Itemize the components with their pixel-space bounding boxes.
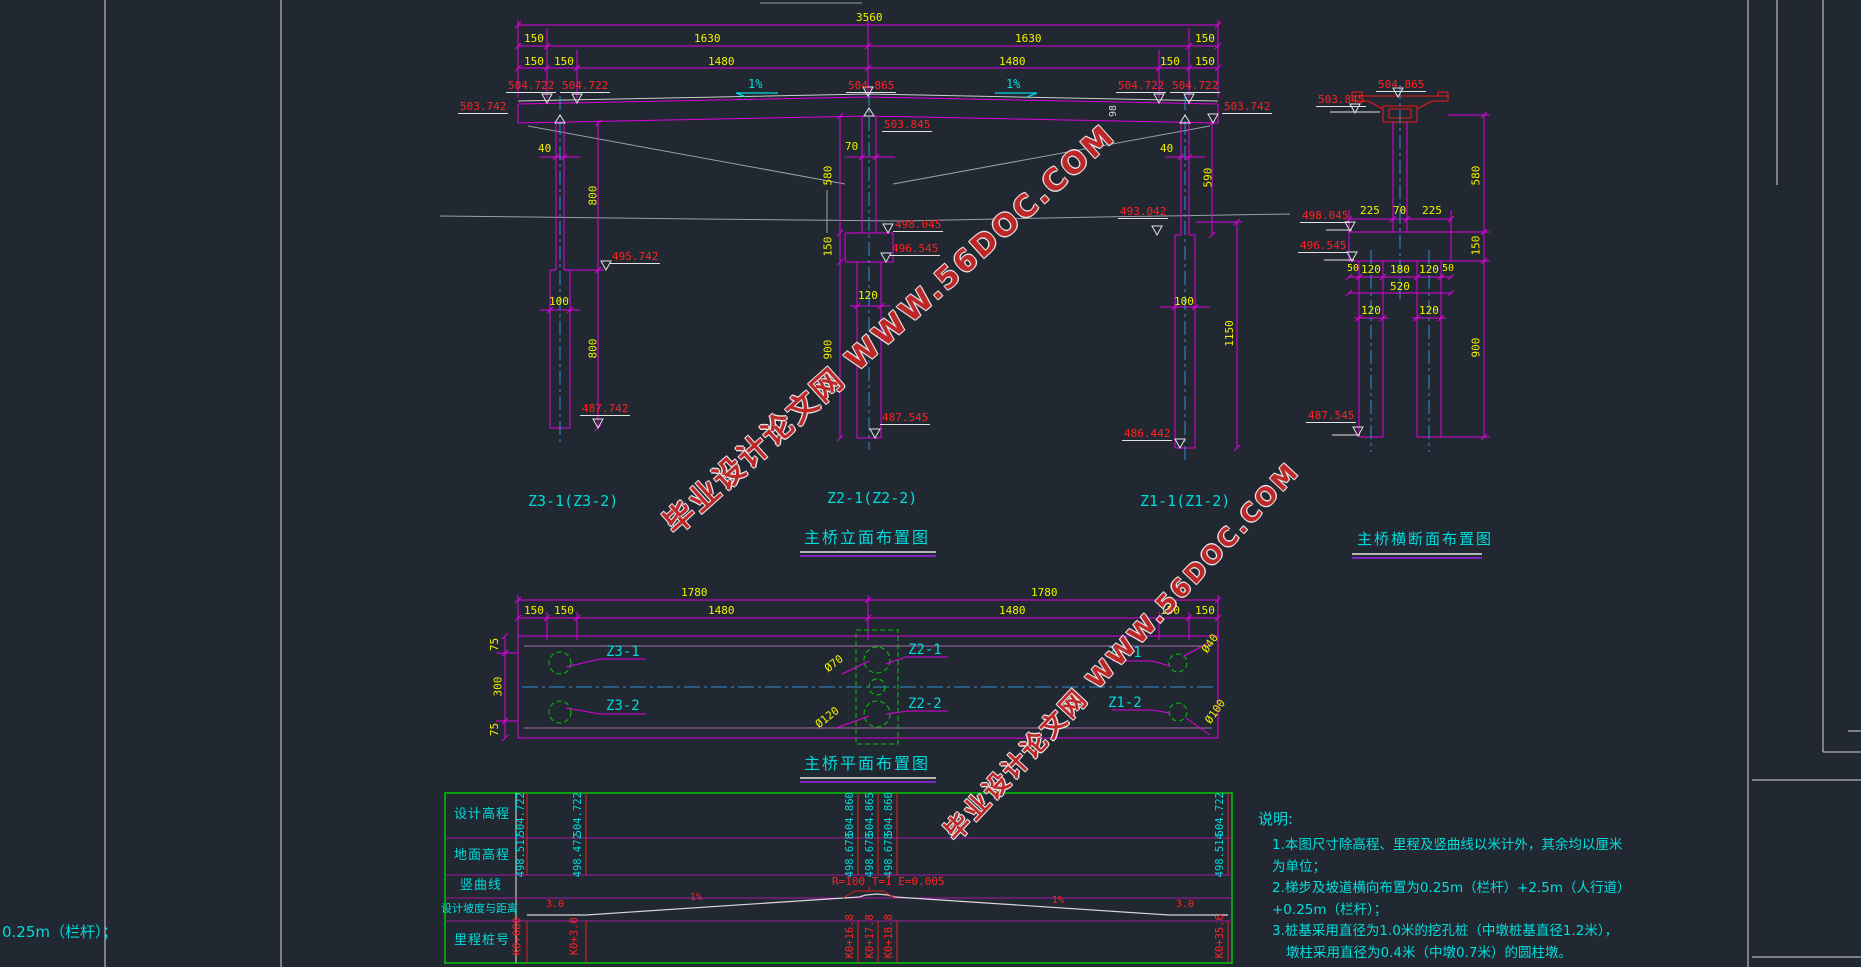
z3-lower-height: 800: [587, 339, 598, 359]
plan-dim-150-2: 150: [554, 605, 574, 616]
profile-grade-line: [527, 894, 1228, 915]
plan-pile-z21: Z2-1: [908, 643, 942, 657]
design-elev-3: 504.865: [865, 792, 876, 836]
note-item-2: 2.梯步及坡道横向布置为0.25m（栏杆）+2.5m（人行道）+0.25m（栏杆…: [1272, 878, 1628, 921]
cs-elev-top: 504.865: [1376, 79, 1426, 92]
notes-block: 说明: 1.本图尺寸除高程、里程及竖曲线以米计外，其余均以厘米为单位； 2.梯步…: [1258, 808, 1628, 965]
stray-clipped-text: 0.25m（栏杆）；: [2, 925, 118, 940]
plan-dim-edge-t: 75: [489, 638, 500, 651]
elevation-piers: [550, 116, 1195, 448]
z3-cap-width: 40: [538, 143, 551, 154]
z2-elev-base: 487.545: [880, 412, 930, 425]
cs-dim-cap-w: 520: [1390, 281, 1410, 292]
elev-dim-total: 3560: [856, 12, 883, 23]
elev-dim-end-r: 150: [1195, 33, 1215, 44]
design-elev-0: 504.722: [516, 792, 527, 836]
cs-dim-pile2-l: 120: [1361, 305, 1381, 316]
elev-soffit-right: 503.742: [1222, 101, 1272, 114]
plan-dim-half-l: 1780: [681, 587, 708, 598]
station-1: K0+3.0: [570, 917, 581, 955]
z3-elev-step: 495.742: [610, 251, 660, 264]
cs-elev-cap-bot: 496.545: [1298, 240, 1348, 253]
plan-dim-half-r: 1780: [1031, 587, 1058, 598]
cs-elev-base: 487.545: [1306, 410, 1356, 423]
plan-dim-clear-l: 1480: [708, 605, 735, 616]
grade-right: 1%: [1052, 896, 1064, 906]
z2-elev-cap-bot: 496.545: [890, 243, 940, 256]
z2-cap-height: 150: [822, 237, 833, 257]
elev-slope-left: 1%: [748, 78, 762, 90]
cs-dim-gap: 180: [1390, 264, 1410, 275]
station-5: K0+35.6: [1215, 914, 1226, 958]
plan-pile-z22: Z2-2: [908, 697, 942, 711]
z2-elev-top: 503.845: [882, 119, 932, 132]
elev-dim-clear-l: 1480: [708, 56, 735, 67]
z2-col-width: 120: [858, 290, 878, 301]
elevation-title-underline: [800, 552, 936, 556]
z3-elev-base: 487.742: [580, 403, 630, 416]
z1-lower-height: 1150: [1224, 320, 1235, 347]
design-elev-2: 504.860: [845, 792, 856, 836]
elev-dim-150-4: 150: [1195, 56, 1215, 67]
elev-level-end-l2: 504.722: [560, 80, 610, 93]
cad-drawing-canvas: 3560 150 1630 1630 150 150 150 1480 1480…: [0, 0, 1861, 967]
plan-view-title: 主桥平面布置图: [804, 756, 930, 772]
table-header-station: 里程桩号: [454, 934, 510, 947]
notes-title: 说明:: [1258, 808, 1628, 829]
station-3: K0+17.8: [865, 914, 876, 958]
elev-level-mid: 504.865: [846, 80, 896, 93]
cross-section-level-markers: [1324, 88, 1403, 436]
elevation-pier-dims: [540, 113, 1242, 451]
plan-pile-z12: Z1-2: [1108, 696, 1142, 710]
elev-slope-right: 1%: [1006, 78, 1020, 90]
station-2: K0+16.8: [845, 914, 856, 958]
pier-label-z3: Z3-1(Z3-2): [528, 494, 618, 509]
cs-dim-edge-r: 50: [1442, 264, 1454, 274]
table-header-grade: 设计坡度与距离: [441, 903, 518, 914]
elev-dim-150-2: 150: [554, 56, 574, 67]
elev-dim-span-r: 1630: [1015, 33, 1042, 44]
elev-level-end-r2: 504.722: [1170, 80, 1220, 93]
elev-level-end-l1: 504.722: [506, 80, 556, 93]
cs-dim-stem: 70: [1393, 205, 1406, 216]
cs-dim-pile-l: 120: [1361, 264, 1381, 275]
plan-dim-150-1: 150: [524, 605, 544, 616]
z2-elev-cap-top: 498.045: [893, 219, 943, 232]
note-item-3-cont: 墩柱采用直径为0.4米（中墩0.7米）的圆柱墩。: [1286, 943, 1628, 965]
design-elev-1: 504.722: [573, 792, 584, 836]
ground-elev-1: 498.472: [573, 833, 584, 877]
vcurve-params: R=100 T=1 E=0.005: [832, 876, 945, 887]
elev-deck-depth: 98: [1109, 105, 1119, 117]
z1-upper-height: 590: [1202, 168, 1213, 188]
plan-dim-edge-b: 75: [489, 723, 500, 736]
z1-cap-width: 40: [1160, 143, 1173, 154]
cross-section-title-underline: [1352, 554, 1482, 558]
z1-elev-base: 486.442: [1122, 428, 1172, 441]
design-elev-5: 504.722: [1215, 792, 1226, 836]
z1-col-width: 100: [1174, 296, 1194, 307]
z2-cap-width: 70: [845, 141, 858, 152]
cross-section-title: 主桥横断面布置图: [1357, 532, 1493, 547]
elev-dim-span-l: 1630: [694, 33, 721, 44]
z1-elev-step: 493.042: [1118, 206, 1168, 219]
cs-dim-upper-h: 580: [1470, 166, 1481, 186]
grade-flat-left: 3.0: [546, 900, 564, 910]
elev-dim-clear-r: 1480: [999, 56, 1026, 67]
design-elev-4: 504.860: [884, 792, 895, 836]
plan-pile-z32: Z3-2: [606, 699, 640, 713]
table-header-design: 设计高程: [454, 808, 510, 821]
cs-dim-side-l: 225: [1360, 205, 1380, 216]
cs-elev-cap-top: 498.045: [1300, 210, 1350, 223]
note-item-1: 1.本图尺寸除高程、里程及竖曲线以米计外，其余均以厘米为单位；: [1272, 835, 1628, 878]
station-4: K0+18.8: [884, 914, 895, 958]
elevation-view-title: 主桥立面布置图: [804, 530, 930, 546]
grade-flat-right: 3.0: [1176, 900, 1194, 910]
elev-dim-end-l: 150: [524, 33, 544, 44]
elev-level-end-r1: 504.722: [1116, 80, 1166, 93]
pier-label-z2: Z2-1(Z2-2): [827, 491, 917, 506]
ground-elev-0: 498.517: [516, 833, 527, 877]
ground-elev-4: 498.678: [884, 833, 895, 877]
elev-dim-150-3: 150: [1160, 56, 1180, 67]
cs-dim-pile2-r: 120: [1419, 305, 1439, 316]
cs-dim-cap-h: 150: [1470, 236, 1481, 256]
plan-title-underline: [800, 778, 936, 782]
plan-pile-z31: Z3-1: [606, 645, 640, 659]
cs-dim-edge-l: 50: [1347, 264, 1359, 274]
grade-left: 1%: [690, 893, 702, 903]
pier-label-z1: Z1-1(Z1-2): [1140, 494, 1230, 509]
cross-section-dims: [1346, 112, 1490, 440]
table-header-vcurve: 竖曲线: [460, 879, 502, 892]
elev-soffit-left: 503.742: [458, 101, 508, 114]
table-header-ground: 地面高程: [454, 849, 510, 862]
cs-elev-soffit: 503.845: [1316, 94, 1366, 107]
cs-dim-pile-r: 120: [1419, 264, 1439, 275]
plan-dim-clear-r: 1480: [999, 605, 1026, 616]
station-0: K0+000: [513, 917, 524, 955]
ground-elev-5: 498.514: [1215, 833, 1226, 877]
cs-dim-side-r: 225: [1422, 205, 1442, 216]
ground-elev-2: 498.678: [845, 833, 856, 877]
plan-dim-mid: 300: [492, 677, 503, 697]
cs-dim-lower-h: 900: [1470, 338, 1481, 358]
z3-upper-height: 800: [587, 186, 598, 206]
note-item-3: 3.桩基采用直径为1.0米的挖孔桩（中墩桩基直径1.2米），: [1272, 921, 1628, 943]
plan-dim-150-4: 150: [1195, 605, 1215, 616]
z2-upper-height: 580: [822, 166, 833, 186]
ground-elev-3: 498.678: [865, 833, 876, 877]
z3-col-width: 100: [549, 296, 569, 307]
elev-dim-150-1: 150: [524, 56, 544, 67]
